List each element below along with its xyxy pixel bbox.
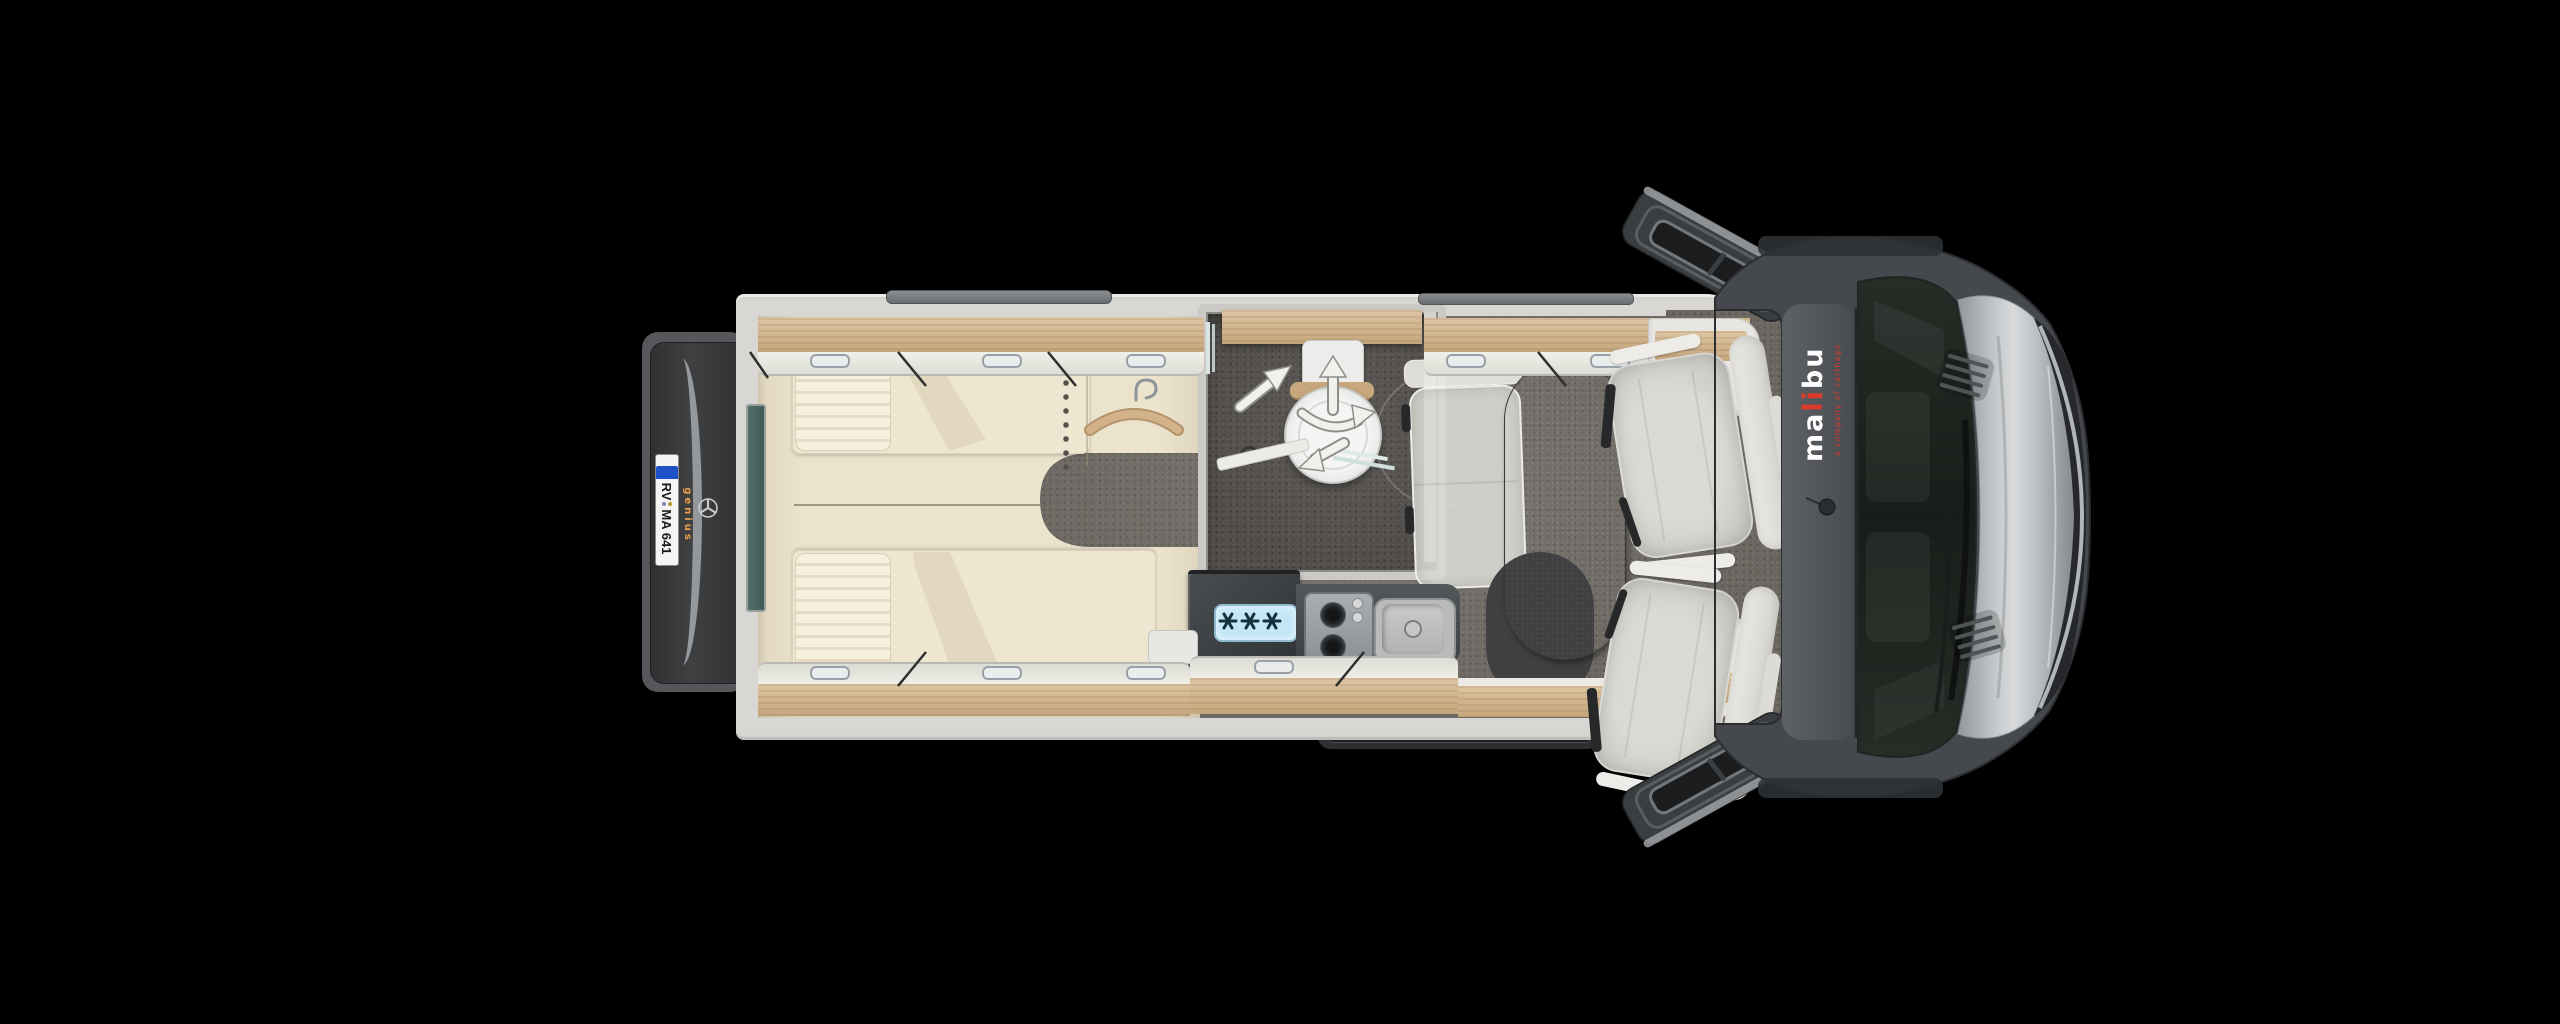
dashboard-ghost: [1866, 392, 1930, 502]
clothes-hanger-icon: [1090, 380, 1178, 430]
swivel-arrow-down-left-icon: [1299, 443, 1344, 471]
locker-hinge-ticks: [750, 352, 1566, 686]
malibu-logo: malibu a company of carthago: [1798, 344, 1842, 462]
overlay-graphics: malibu a company of carthago: [0, 0, 2560, 1024]
floorplan-scene: RV MA 641 genius: [0, 0, 2560, 1024]
logo-part: ma: [1798, 412, 1829, 462]
roof-antenna-icon: [1819, 499, 1835, 515]
swivel-arrow-up-icon: [1320, 356, 1346, 410]
swivel-arrow-up-right-icon: [1240, 366, 1291, 407]
svg-text:malibu: malibu: [1798, 347, 1829, 462]
logo-part: bu: [1798, 347, 1829, 390]
freezer-stars-icon: [1220, 614, 1280, 628]
logo-tagline: a company of carthago: [1833, 344, 1842, 456]
cab-sill-top: [1758, 236, 1943, 256]
cab-sill-bottom: [1758, 778, 1943, 798]
logo-part-accent: li: [1798, 389, 1829, 412]
dashboard-ghost: [1866, 532, 1930, 642]
